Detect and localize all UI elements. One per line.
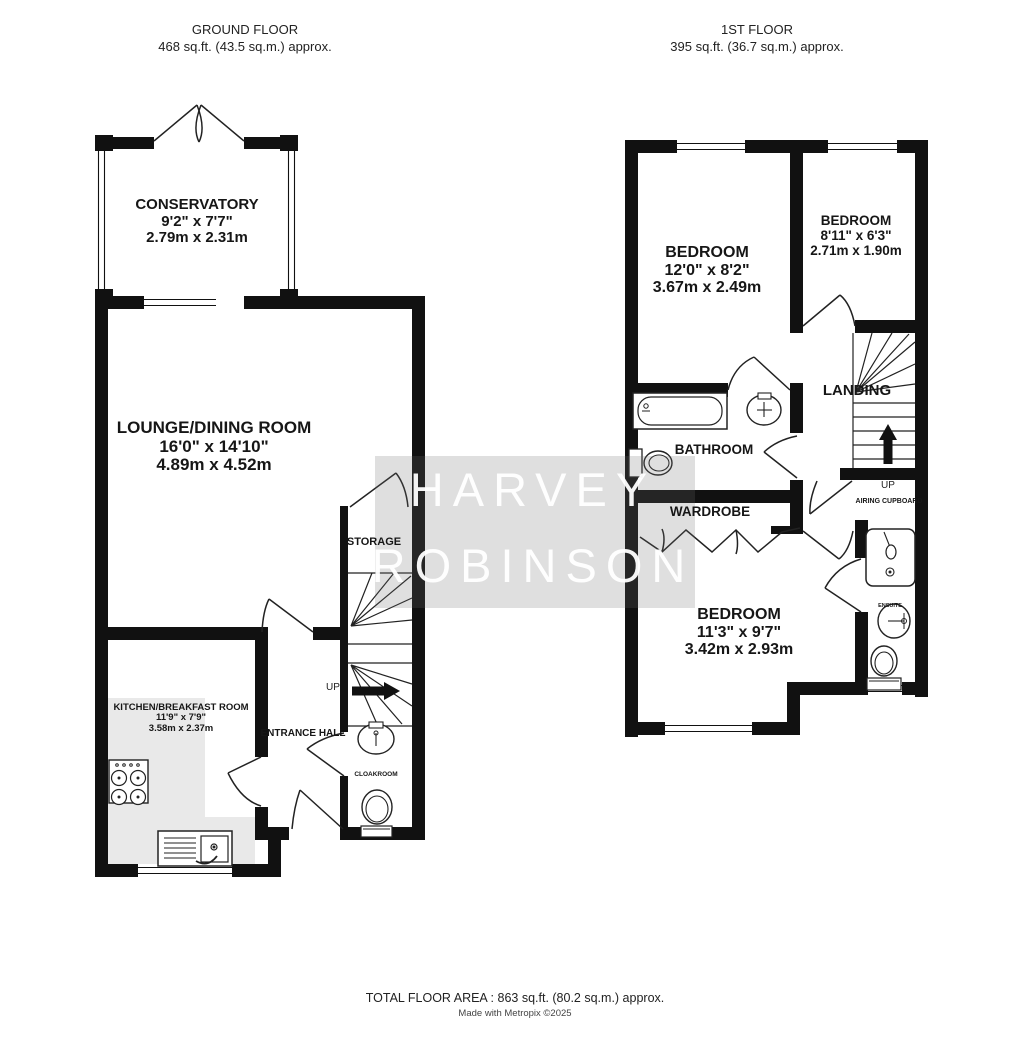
entrance-hall-label: ENTRANCE HALL bbox=[261, 728, 346, 739]
stove-icon bbox=[109, 760, 148, 805]
bath-icon bbox=[633, 393, 727, 429]
ensuite-basin-icon bbox=[878, 604, 910, 638]
ensuite-label: ENSUITE bbox=[878, 603, 902, 609]
room-name: BEDROOM bbox=[653, 244, 762, 262]
first-up-label: UP bbox=[881, 480, 895, 491]
bedroom1-label: BEDROOM 12'0" x 8'2" 3.67m x 2.49m bbox=[653, 244, 762, 297]
airing-cupboard-door-icon bbox=[810, 481, 852, 514]
front-door-icon bbox=[292, 790, 343, 829]
cloakroom-door-icon bbox=[307, 733, 344, 776]
conservatory-label: CONSERVATORY 9'2" x 7'7" 2.79m x 2.31m bbox=[135, 197, 258, 247]
bathroom-label: BATHROOM bbox=[675, 443, 754, 458]
bathroom-basin-icon bbox=[747, 393, 781, 425]
kitchen-door-icon bbox=[228, 757, 261, 806]
cloakroom-toilet-icon bbox=[361, 790, 392, 837]
bedroom1-door-icon bbox=[728, 357, 790, 390]
room-size-imperial: 16'0" x 14'10" bbox=[117, 438, 312, 457]
ground-up-label: UP bbox=[326, 682, 340, 693]
room-size-metric: 3.67m x 2.49m bbox=[653, 279, 762, 297]
landing-label: LANDING bbox=[823, 383, 891, 400]
room-name: CONSERVATORY bbox=[135, 197, 258, 214]
first-up-arrow-icon bbox=[879, 424, 897, 464]
shower-icon bbox=[866, 529, 915, 586]
room-size-metric: 3.58m x 2.37m bbox=[113, 724, 248, 734]
bedroom3-door-icon bbox=[803, 531, 853, 559]
kitchen-sink-icon bbox=[158, 831, 232, 866]
room-size-metric: 2.79m x 2.31m bbox=[135, 230, 258, 247]
french-doors-icon bbox=[154, 105, 244, 142]
wardrobe-label: WARDROBE bbox=[670, 505, 750, 520]
room-size-metric: 2.71m x 1.90m bbox=[810, 244, 902, 259]
room-size-imperial: 11'3" x 9'7" bbox=[685, 624, 794, 642]
bedroom3-label: BEDROOM 11'3" x 9'7" 3.42m x 2.93m bbox=[685, 606, 794, 659]
metropix-credit: Made with Metropix ©2025 bbox=[458, 1008, 571, 1019]
ensuite-toilet-icon bbox=[867, 646, 901, 690]
cloakroom-label: CLOAKROOM bbox=[354, 771, 397, 778]
lounge-label: LOUNGE/DINING ROOM 16'0" x 14'10" 4.89m … bbox=[117, 419, 312, 475]
bathroom-door-icon bbox=[764, 436, 797, 478]
bedroom2-label: BEDROOM 8'11" x 6'3" 2.71m x 1.90m bbox=[810, 214, 902, 259]
room-size-imperial: 12'0" x 8'2" bbox=[653, 262, 762, 280]
room-size-imperial: 8'11" x 6'3" bbox=[810, 229, 902, 244]
bedroom2-door-icon bbox=[803, 295, 855, 326]
room-name: BEDROOM bbox=[810, 214, 902, 229]
total-floor-area: TOTAL FLOOR AREA : 863 sq.ft. (80.2 sq.m… bbox=[366, 991, 665, 1005]
room-name: LOUNGE/DINING ROOM bbox=[117, 419, 312, 438]
airing-cupboard-label: AIRING CUPBOARD bbox=[856, 498, 923, 506]
watermark-line2: ROBINSON bbox=[372, 538, 695, 593]
room-name: BEDROOM bbox=[685, 606, 794, 624]
watermark-line1: HARVEY bbox=[410, 462, 656, 517]
kitchen-label: KITCHEN/BREAKFAST ROOM 11'9" x 7'9" 3.58… bbox=[113, 703, 248, 734]
ensuite-door-icon bbox=[825, 559, 861, 612]
room-size-metric: 3.42m x 2.93m bbox=[685, 641, 794, 659]
room-size-metric: 4.89m x 4.52m bbox=[117, 456, 312, 475]
floorplan-page: GROUND FLOOR 468 sq.ft. (43.5 sq.m.) app… bbox=[0, 0, 1024, 1058]
cloakroom-basin-icon bbox=[358, 722, 394, 754]
lounge-door-icon bbox=[262, 599, 313, 632]
room-size-imperial: 9'2" x 7'7" bbox=[135, 214, 258, 231]
